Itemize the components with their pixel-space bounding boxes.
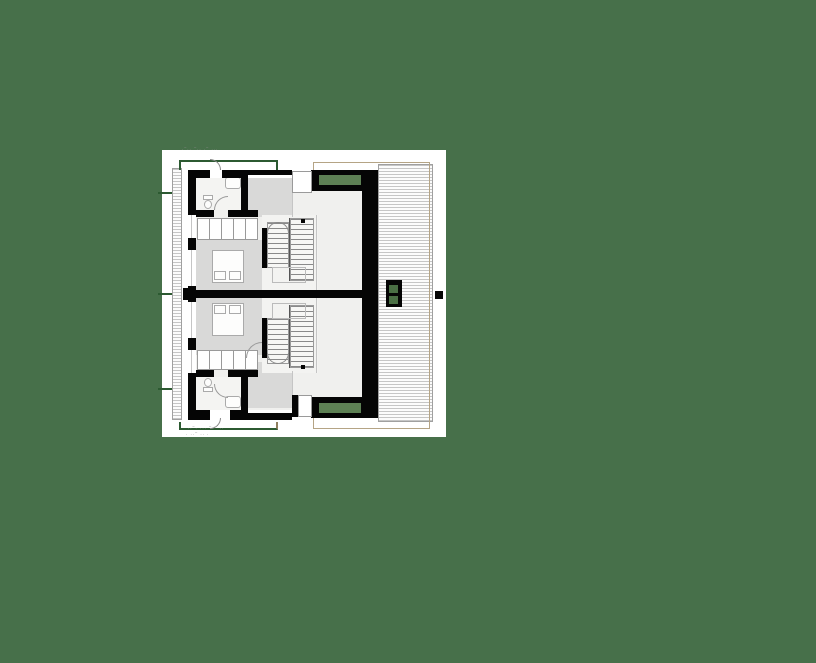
stairwell-edge-bottom [316, 298, 317, 373]
stair-marker-top [301, 219, 305, 223]
stair-marker-bottom [301, 365, 305, 369]
bathroom-wall-top [196, 210, 214, 217]
wardrobe-cell [210, 351, 222, 369]
wardrobe-cell [210, 219, 222, 239]
stair-landing-top [272, 267, 306, 283]
wardrobe-cell [198, 351, 210, 369]
stair-wall-top [262, 228, 267, 268]
pillow [229, 271, 241, 280]
toilet-tank-bottom [203, 387, 213, 392]
exterior-wall-top [188, 170, 210, 178]
partition-line-bottom [292, 371, 293, 395]
bathroom-wall-bottom [241, 374, 248, 418]
wardrobe-cell [246, 219, 257, 239]
partition-line-top [292, 193, 293, 217]
chimney-flue [389, 285, 398, 293]
skylight-strip-top [319, 175, 361, 185]
bathtub-top [225, 177, 241, 189]
toilet-bowl-top [204, 200, 212, 209]
window-box-bottom [298, 395, 312, 417]
skylight-strip-bottom [319, 403, 361, 413]
bathroom-wall-bottom [196, 370, 214, 377]
dimension-marks-bottom: ··‾· ··· ‾·‾ ·· [188, 427, 224, 431]
wardrobe-cell [198, 219, 210, 239]
exterior-wall-bottom [188, 410, 210, 420]
stair-wall-bottom [262, 318, 267, 358]
wardrobe-cell [222, 351, 234, 369]
toilet-bowl-bottom [204, 378, 212, 387]
exterior-wall-left [188, 338, 196, 350]
party-wall-stub [183, 288, 188, 300]
wardrobe-top [197, 218, 258, 240]
section-tick-middle [158, 293, 172, 295]
window-box-top [292, 171, 312, 193]
bathroom-wall-bottom [228, 370, 258, 377]
wardrobe-cell [234, 351, 246, 369]
section-tick-upper [158, 192, 172, 194]
stair-landing-bottom [272, 303, 306, 319]
dimension-marks-bottom-2: · ··‾ ·· · [186, 433, 209, 437]
chimney-flue [389, 296, 398, 304]
pillow [214, 271, 226, 280]
wardrobe-cell [234, 219, 246, 239]
section-tick-lower [158, 388, 172, 390]
exterior-wall-top-thin [248, 170, 292, 175]
pillow [229, 305, 241, 314]
stairwell-edge-top [316, 215, 317, 290]
dimension-marks-top: ·‾·· ‾·· ·‾ ··· [182, 148, 218, 152]
exterior-wall-left [188, 238, 196, 250]
floor-plan-sheet: ·‾·· ‾·· ·‾ ··· ··‾· ··· ‾·‾ ·· · ··‾ ··… [162, 150, 446, 437]
pillow [214, 305, 226, 314]
edge-notch [435, 291, 443, 299]
roof-hatch-left [172, 168, 182, 420]
party-wall-center [188, 290, 378, 298]
bathroom-wall-top [241, 170, 248, 214]
terrace-outline-top [179, 160, 278, 170]
exterior-wall-bottom-thin [248, 413, 292, 420]
desktop-background: ·‾·· ‾·· ·‾ ··· ··‾· ··· ‾·‾ ·· · ··‾ ··… [0, 0, 816, 663]
wardrobe-cell [222, 219, 234, 239]
bathroom-wall-top [228, 210, 258, 217]
